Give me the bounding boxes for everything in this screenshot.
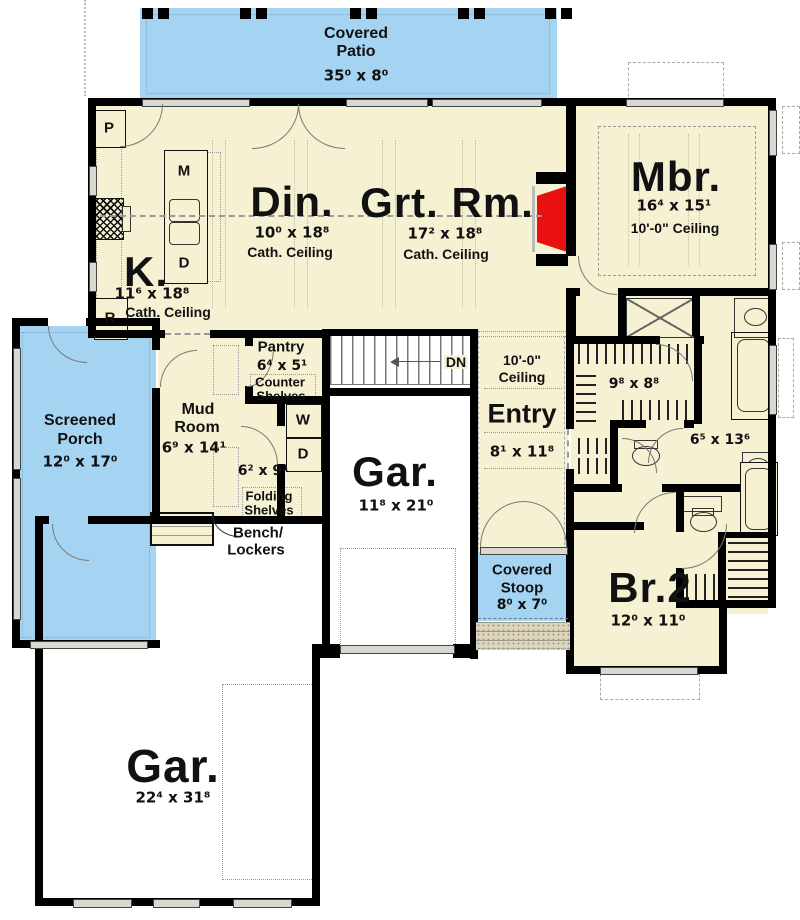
toilet-tank <box>692 508 714 516</box>
garage-door <box>73 899 132 908</box>
screened-porch-dims: 12⁰ x 17⁰ <box>42 455 117 470</box>
screened-porch-label: Screened <box>44 413 116 429</box>
patio-post <box>474 8 485 19</box>
wall <box>470 329 478 659</box>
wall <box>566 329 574 429</box>
dishwasher-letter: D <box>179 256 190 271</box>
window <box>432 99 542 107</box>
dining-ceiling: Cath. Ceiling <box>247 245 333 259</box>
wall <box>453 644 478 658</box>
entry-label: Entry <box>487 401 556 428</box>
entry-ceiling-break <box>478 331 568 337</box>
mud-room-label: Mud <box>182 402 215 418</box>
garage-main-dims: 22⁴ x 31⁸ <box>135 791 210 806</box>
garage-door <box>233 899 292 908</box>
island-overhang <box>206 152 221 282</box>
pantry-label: Pantry <box>258 340 305 355</box>
wall <box>684 420 694 428</box>
patio-post <box>142 8 153 19</box>
laundry-note: Shelves <box>244 504 293 517</box>
wic-dims: 9⁸ x 8⁸ <box>609 377 660 391</box>
bench-lockers-label: Bench/ <box>233 526 283 541</box>
entry-ceiling-edge <box>564 336 565 550</box>
dryer-letter: D <box>298 447 309 462</box>
great-room-label: Grt. Rm. <box>360 182 534 224</box>
porch-screen <box>13 478 21 620</box>
master-bedroom-dims: 16⁴ x 15¹ <box>636 199 711 214</box>
covered-patio-dims: 35⁰ x 8⁰ <box>324 69 389 84</box>
microwave-letter: M <box>178 164 191 179</box>
window <box>769 244 777 290</box>
refrigerator-letter: R <box>105 311 116 326</box>
window <box>89 262 97 292</box>
garage-side-dims: 11⁸ x 21⁰ <box>358 499 433 514</box>
patio-post <box>458 8 469 19</box>
window <box>626 99 724 107</box>
covered-patio-label: Patio <box>336 44 375 60</box>
wall <box>152 388 160 520</box>
fireplace <box>537 186 567 252</box>
dn-arrow-line <box>398 361 440 362</box>
wall <box>662 484 740 492</box>
entry-floor-line <box>484 432 562 433</box>
garage-main-label: Gar. <box>126 743 220 789</box>
wall <box>312 650 320 906</box>
wall <box>245 330 330 338</box>
garage-bay-door <box>340 645 455 654</box>
wall <box>277 404 285 426</box>
roof-line <box>84 0 86 96</box>
window <box>89 166 97 196</box>
master-tub-inner <box>737 339 770 412</box>
entry-ceiling-edge <box>478 336 479 550</box>
sink <box>744 308 767 326</box>
stairs-dn-label: DN <box>444 355 468 369</box>
kitchen-dims: 11⁶ x 18⁸ <box>114 287 189 302</box>
kitchen-ceiling: Cath. Ceiling <box>125 305 211 319</box>
wall <box>322 329 474 336</box>
wall <box>718 532 776 538</box>
covered-stoop-dims: 8⁰ x 7⁰ <box>497 598 548 612</box>
entry-floor-line <box>484 468 562 469</box>
covered-patio-label: Covered <box>324 26 388 42</box>
great-room-ceiling: Cath. Ceiling <box>403 247 489 261</box>
wall <box>566 106 576 256</box>
screened-porch-label: Porch <box>57 432 102 448</box>
cased-opening <box>567 429 569 469</box>
wall <box>694 336 702 424</box>
pantry-cabinet-letter: P <box>104 121 114 136</box>
sink <box>169 199 200 222</box>
roof-overhang <box>778 338 794 418</box>
patio-post <box>350 8 361 19</box>
pantry-note: Shelves <box>256 390 305 403</box>
wall <box>210 330 250 338</box>
washer-letter: W <box>296 413 310 428</box>
patio-post <box>240 8 251 19</box>
mudroom-lockers <box>213 345 239 395</box>
pantry-note: Counter <box>255 376 305 389</box>
shower <box>626 298 694 338</box>
br2-closet-hatch <box>728 540 768 598</box>
patio-post <box>158 8 169 19</box>
wall <box>618 296 626 336</box>
wall <box>618 288 768 296</box>
mud-room-dims: 6⁹ x 14¹ <box>162 441 227 456</box>
window-bay-outline <box>600 674 700 700</box>
mud-room-label: Room <box>174 420 219 436</box>
stoop-screen-line <box>478 618 568 619</box>
patio-post <box>256 8 267 19</box>
wall <box>312 644 340 658</box>
wall <box>566 484 622 492</box>
window <box>769 345 777 415</box>
wall <box>322 388 478 396</box>
window <box>600 667 698 675</box>
window <box>769 110 777 156</box>
porch-screen <box>30 641 148 649</box>
wall <box>88 330 165 338</box>
wic-shelf-hatch <box>622 400 692 420</box>
patio-post <box>366 8 377 19</box>
master-bath-dims: 6⁵ x 13⁶ <box>690 433 750 447</box>
porch-screen <box>13 348 21 470</box>
pantry-dims: 6⁴ x 5¹ <box>257 359 308 373</box>
wall <box>88 98 96 338</box>
garage-bay-outline <box>222 684 320 880</box>
roof-overhang <box>782 242 800 290</box>
great-room-dims: 17² x 18⁸ <box>407 227 482 242</box>
dining-label: Din. <box>250 181 333 223</box>
bedroom2-dims: 12⁰ x 11⁰ <box>610 614 685 629</box>
fireplace-wall <box>536 172 568 184</box>
wall <box>35 516 43 906</box>
patio-post <box>561 8 572 19</box>
master-bedroom-ceiling: 10'-0" Ceiling <box>631 221 720 235</box>
bedroom2-label: Br.2 <box>608 567 691 609</box>
garage-side-label: Gar. <box>352 451 438 493</box>
bench-lockers-label: Lockers <box>227 543 285 558</box>
wall <box>245 330 253 346</box>
entry-ceiling: Ceiling <box>499 370 546 384</box>
wall <box>692 296 700 336</box>
covered-stoop-label: Covered <box>492 563 552 578</box>
entry-floor-line <box>484 388 562 389</box>
wall <box>566 294 576 336</box>
wall <box>719 600 776 608</box>
dn-arrow-head <box>390 357 399 367</box>
laundry-note: Folding <box>246 490 293 503</box>
window <box>346 99 428 107</box>
covered-stoop-label: Stoop <box>501 581 544 596</box>
cased-opening <box>165 333 210 335</box>
wall <box>566 288 580 296</box>
garage-door <box>153 899 200 908</box>
master-bedroom-label: Mbr. <box>631 156 721 198</box>
fireplace-wall <box>536 254 568 266</box>
roof-overhang <box>782 106 800 154</box>
wall <box>566 336 660 344</box>
entry-ceiling: 10'-0" <box>503 353 541 367</box>
dining-dims: 10⁰ x 18⁸ <box>254 226 329 241</box>
range-handle <box>122 206 131 232</box>
entry-door-sill <box>480 547 568 555</box>
patio-post <box>545 8 556 19</box>
garage-bay-outline <box>340 548 456 648</box>
driveway-line <box>478 648 570 649</box>
sink <box>169 222 200 245</box>
wall <box>610 420 618 484</box>
wall <box>719 600 727 674</box>
floor-plan: Covered Patio 35⁰ x 8⁰ Din. 10⁰ x 18⁸ Ca… <box>0 0 800 920</box>
wic-shelf-hatch <box>576 368 596 422</box>
laundry-dims: 6² x 9¹ <box>238 464 289 478</box>
wall <box>322 330 330 658</box>
entry-dims: 8¹ x 11⁸ <box>490 445 555 460</box>
roof-overhang <box>628 62 724 102</box>
